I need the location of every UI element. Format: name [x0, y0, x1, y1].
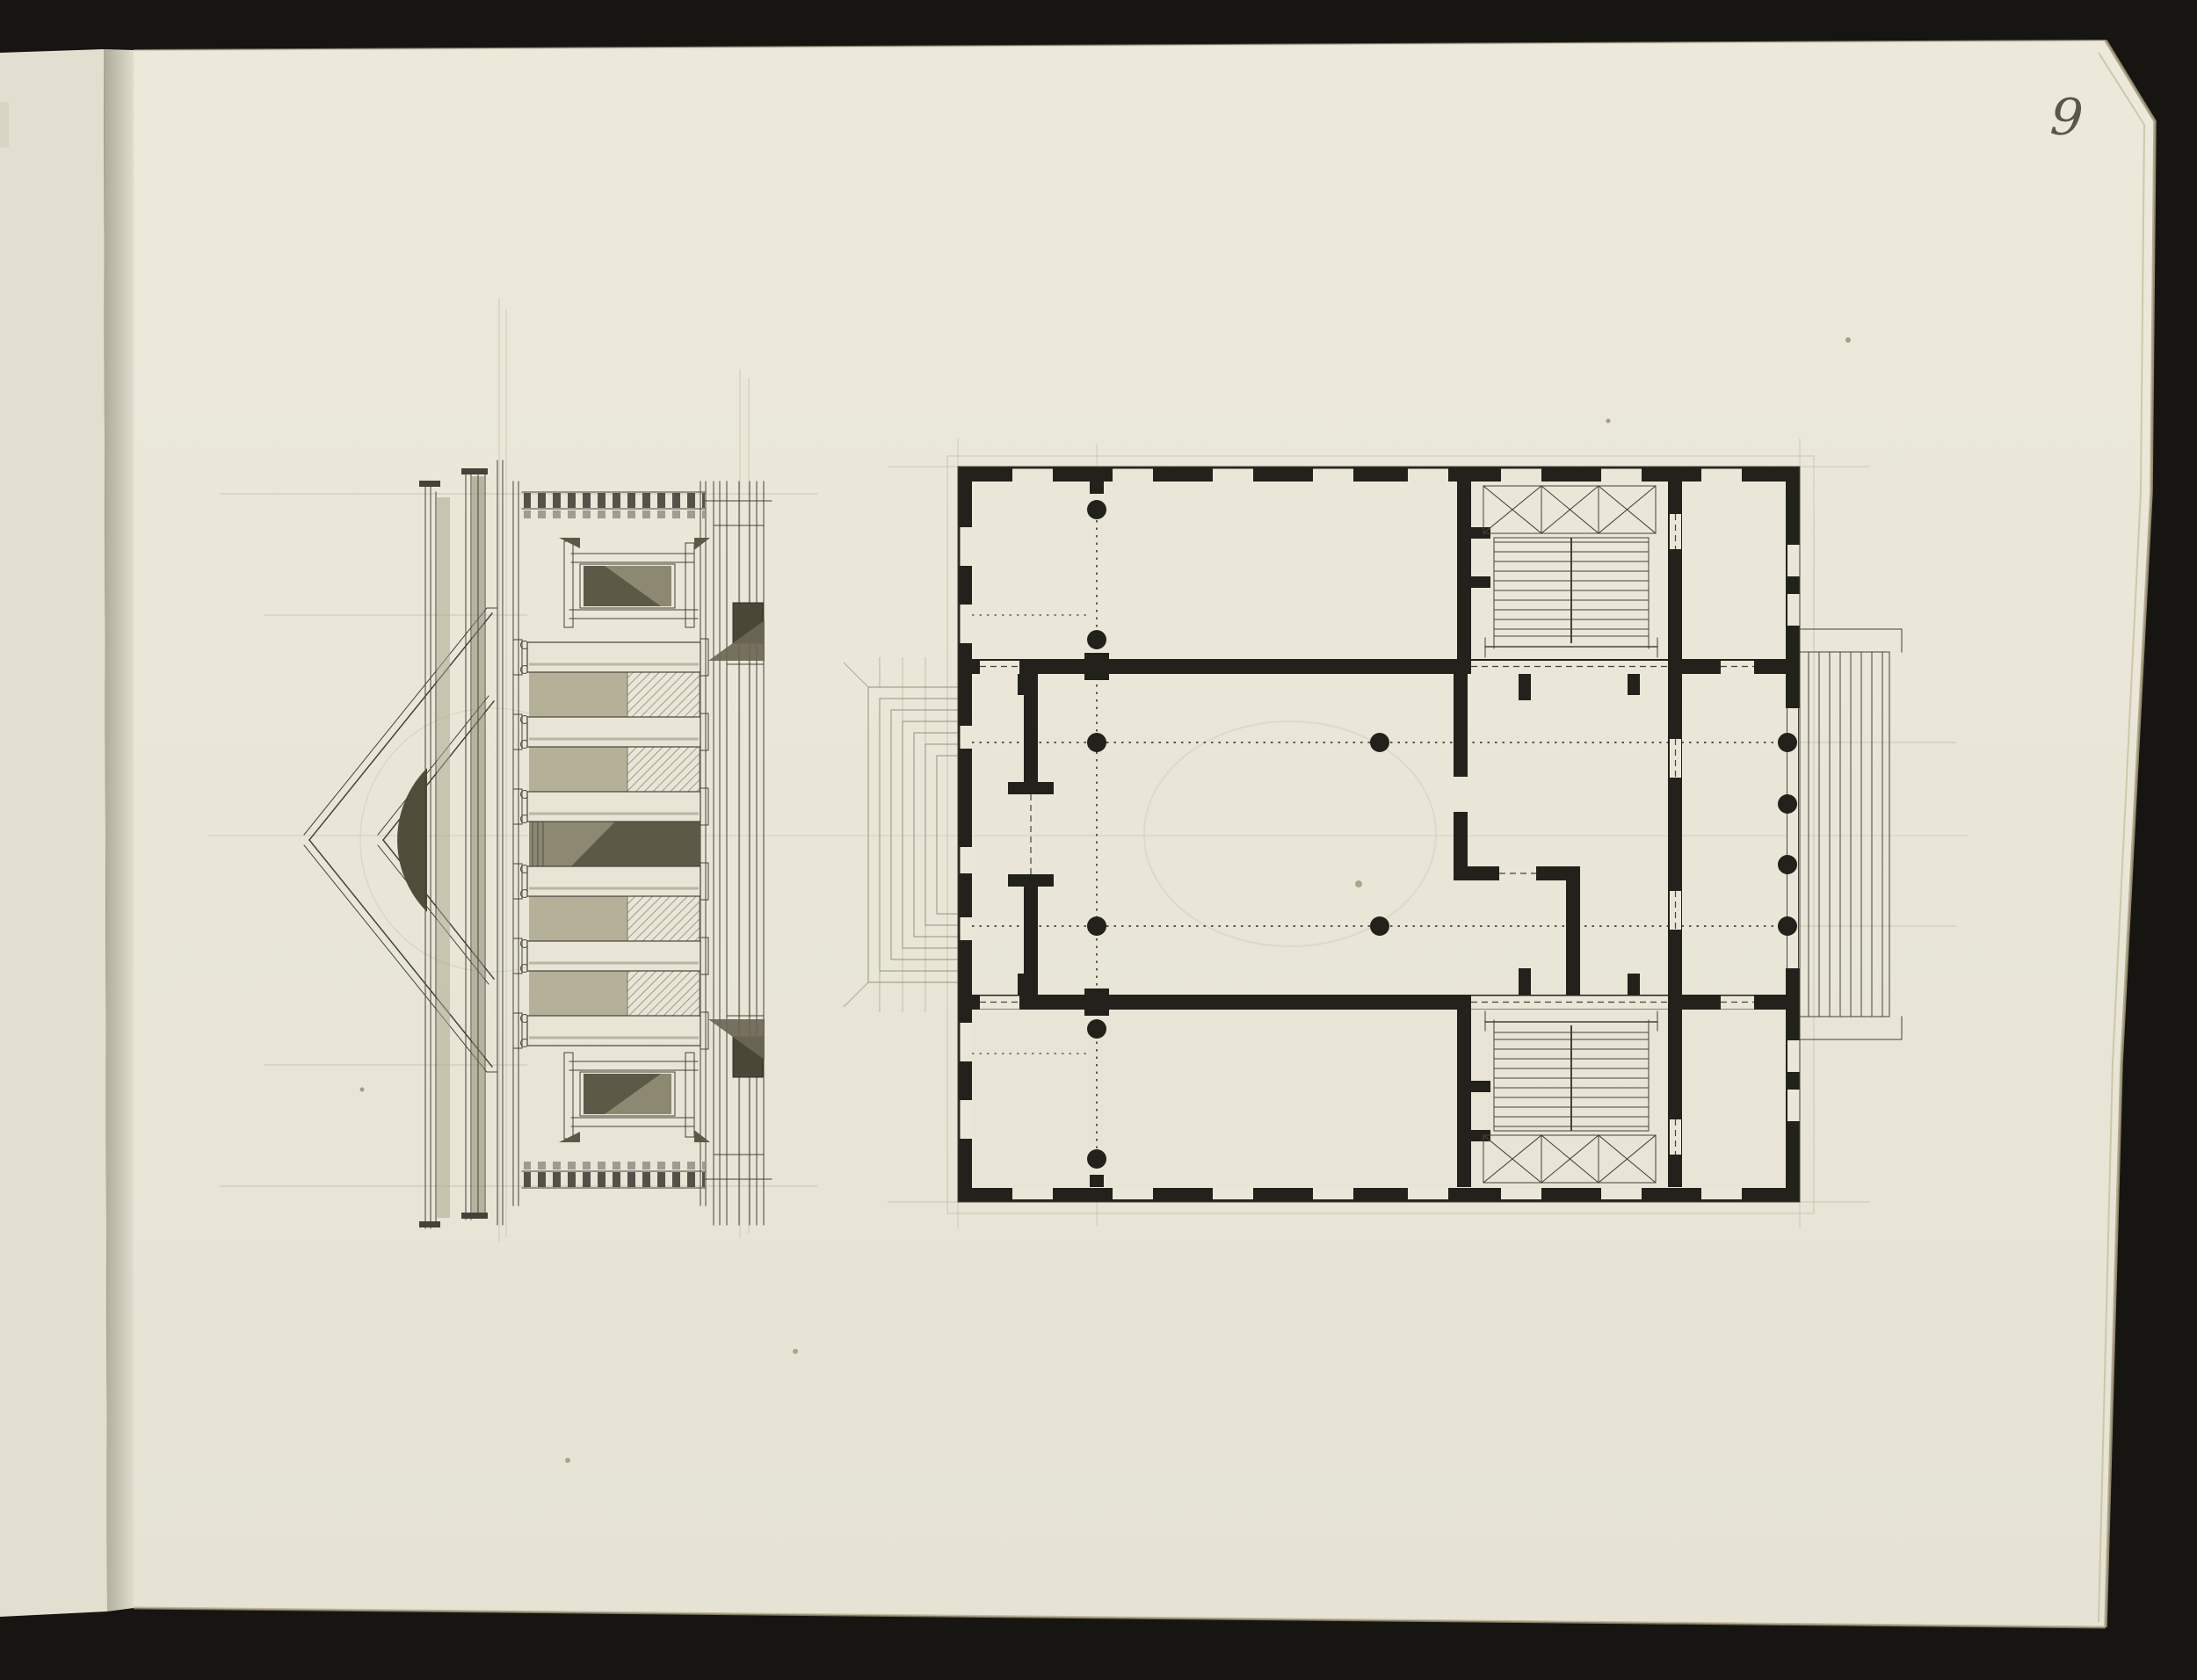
column	[513, 938, 708, 974]
binding-notch	[0, 102, 9, 148]
page-number: 9	[2048, 86, 2085, 148]
sketchbook-scan: 9	[0, 0, 2197, 1680]
corridor-wall-upper	[958, 659, 1800, 674]
column	[513, 639, 708, 676]
book	[0, 40, 2155, 1627]
corridor-wall-lower	[958, 995, 1800, 1010]
column	[513, 713, 708, 750]
column	[513, 863, 708, 900]
previous-page-edge	[0, 49, 107, 1617]
scanned-sketchbook-spread: 9	[0, 0, 2197, 1680]
column	[513, 788, 708, 825]
book-gutter	[104, 49, 134, 1611]
column	[513, 1012, 708, 1049]
